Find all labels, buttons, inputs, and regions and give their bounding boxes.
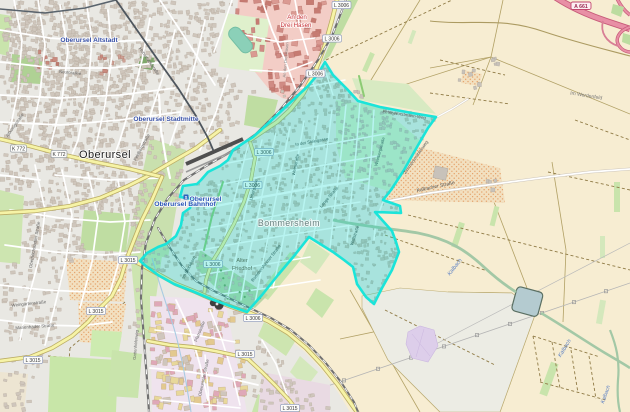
svg-text:K 772: K 772 <box>52 152 65 158</box>
svg-text:Friedhof: Friedhof <box>232 266 253 272</box>
svg-text:Oberursel Altstadt: Oberursel Altstadt <box>60 37 118 44</box>
svg-text:Alter: Alter <box>236 258 247 264</box>
svg-text:L 3015: L 3015 <box>282 406 297 412</box>
svg-text:L 3015: L 3015 <box>25 358 40 364</box>
svg-text:An den: An den <box>287 14 307 21</box>
svg-text:Oberursel Stadtmitte: Oberursel Stadtmitte <box>133 116 199 123</box>
svg-text:K 772: K 772 <box>12 146 25 152</box>
svg-text:S: S <box>185 195 188 200</box>
svg-text:L 3006: L 3006 <box>245 316 260 322</box>
svg-text:L 3006: L 3006 <box>334 3 349 9</box>
svg-text:L 3015: L 3015 <box>88 309 103 315</box>
svg-text:Oberursel: Oberursel <box>79 149 131 161</box>
svg-text:Oberursel Bahnhof: Oberursel Bahnhof <box>154 201 216 208</box>
svg-text:L 3006: L 3006 <box>324 36 339 42</box>
svg-text:L 3015: L 3015 <box>237 352 252 358</box>
svg-text:Drei Hasen: Drei Hasen <box>281 22 313 29</box>
svg-text:A 661: A 661 <box>574 4 588 10</box>
svg-text:L 3006: L 3006 <box>308 71 323 77</box>
svg-text:Bommersheim: Bommersheim <box>258 218 320 228</box>
svg-text:L 3015: L 3015 <box>120 258 135 264</box>
